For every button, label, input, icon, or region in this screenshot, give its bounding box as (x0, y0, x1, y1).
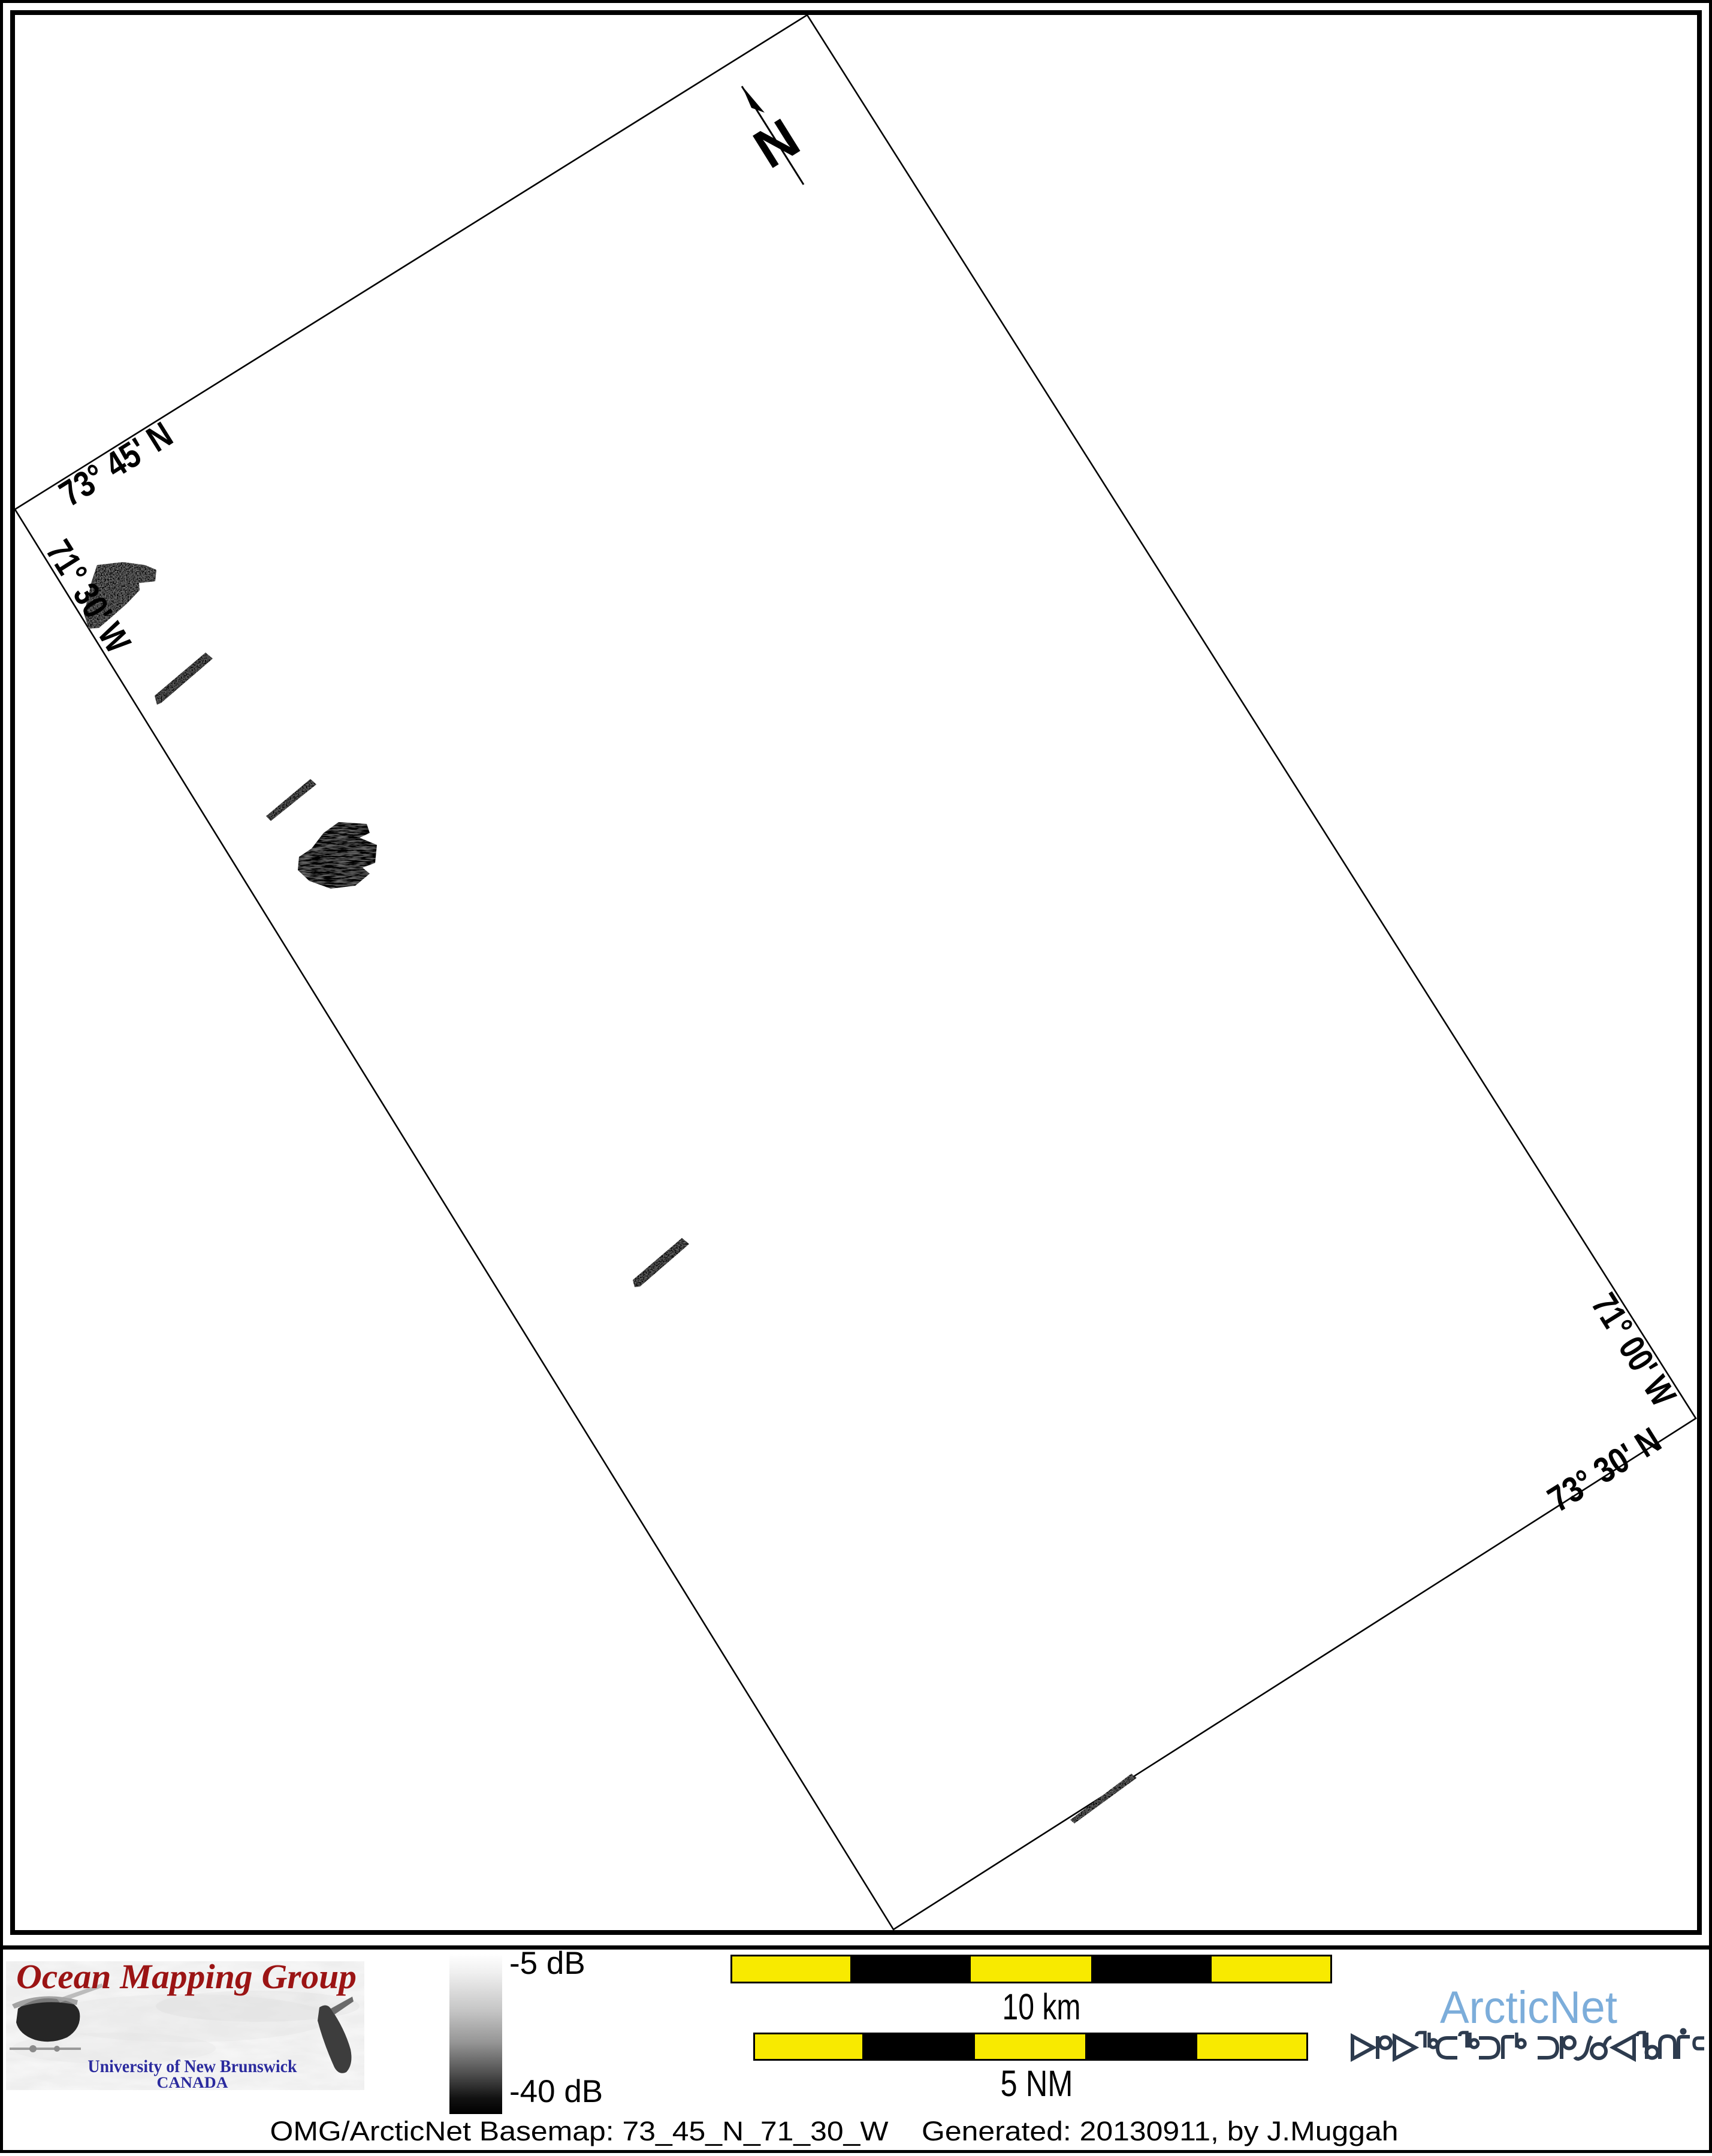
svg-text:OMG/ArcticNet Basemap: 73_45_N: OMG/ArcticNet Basemap: 73_45_N_71_30_W G… (270, 2116, 1399, 2146)
svg-text:CANADA: CANADA (157, 2074, 228, 2091)
svg-text:-40 dB: -40 dB (509, 2074, 603, 2109)
svg-text:ArcticNet: ArcticNet (1440, 1982, 1617, 2033)
svg-text:-5 dB: -5 dB (509, 1946, 585, 1981)
svg-text:Ocean Mapping Group: Ocean Mapping Group (16, 1957, 357, 1996)
svg-text:5 NM: 5 NM (1001, 2063, 1073, 2104)
svg-text:10 km: 10 km (1003, 1986, 1081, 2027)
